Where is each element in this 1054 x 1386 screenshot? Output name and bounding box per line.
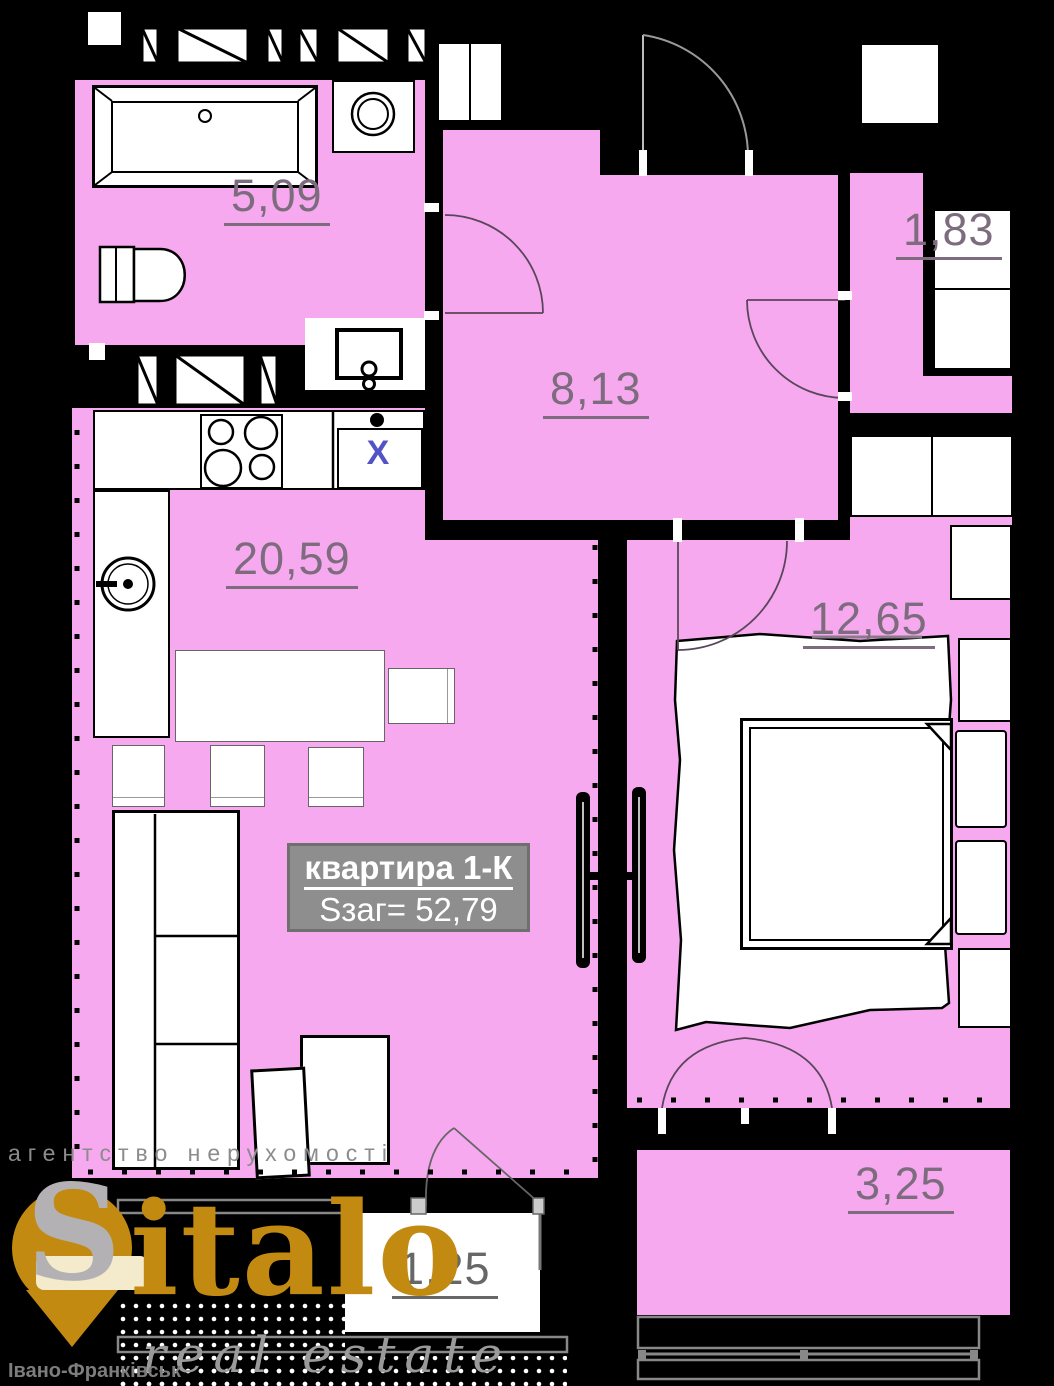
nightstand <box>958 638 1012 722</box>
room-balcony-large <box>637 1150 1010 1315</box>
wardrobe-pair <box>850 435 1013 517</box>
area-label-bedroom: 12,65 <box>803 593 935 649</box>
duct-small <box>89 343 105 360</box>
apartment-title: квартира 1-К <box>304 849 512 890</box>
apartment-total-area: Sзаг= 52,79 <box>290 890 527 930</box>
watermark-brand: italo <box>130 1190 465 1312</box>
door-post <box>533 1198 544 1214</box>
watermark-brand-initial: S <box>26 1168 121 1300</box>
vent-shafts-mid <box>137 355 277 405</box>
area-label-kitchen-living: 20,59 <box>226 533 358 589</box>
watermark-tagline: real estate <box>142 1326 511 1384</box>
pillow <box>955 840 1007 935</box>
duct-block-corner <box>88 12 121 45</box>
area-label-balcony-large: 3,25 <box>848 1158 954 1214</box>
chair <box>308 747 364 807</box>
bed <box>740 718 953 950</box>
kitchen-side-counter <box>93 490 170 738</box>
area-label-hallway: 8,13 <box>543 363 649 419</box>
sofa <box>112 810 240 1170</box>
nightstand <box>958 948 1012 1028</box>
floor-plan: 5,09 8,13 1,83 20,59 12,65 3,25 1,25 X к… <box>0 0 1054 1386</box>
bedroom-wardrobe <box>950 525 1012 600</box>
area-label-bathroom: 5,09 <box>224 170 330 226</box>
washing-machine <box>332 80 415 153</box>
pillow <box>955 730 1007 828</box>
kitchen-sink-x-mark: X <box>358 434 398 473</box>
vent-shafts-top <box>142 28 426 63</box>
chair <box>112 745 165 807</box>
watermark-city: Івано-Франківськ <box>8 1360 181 1383</box>
room-closet-bottom <box>850 376 1012 413</box>
duct-block-top-right <box>860 43 940 125</box>
stove <box>200 414 283 489</box>
bathtub-inner <box>111 101 299 173</box>
dining-table <box>175 650 385 742</box>
room-hallway <box>443 130 600 520</box>
chair <box>210 745 265 807</box>
bathroom-sink-cabinet <box>305 318 425 390</box>
entrance-door-icon <box>643 35 748 158</box>
bed-mattress <box>749 727 944 941</box>
apartment-label-box: квартира 1-К Sзаг= 52,79 <box>287 843 530 932</box>
duct-block-hallway <box>437 42 503 122</box>
area-label-closet: 1,83 <box>896 204 1002 260</box>
room-hallway-right <box>600 175 838 520</box>
chair-end <box>388 668 455 724</box>
